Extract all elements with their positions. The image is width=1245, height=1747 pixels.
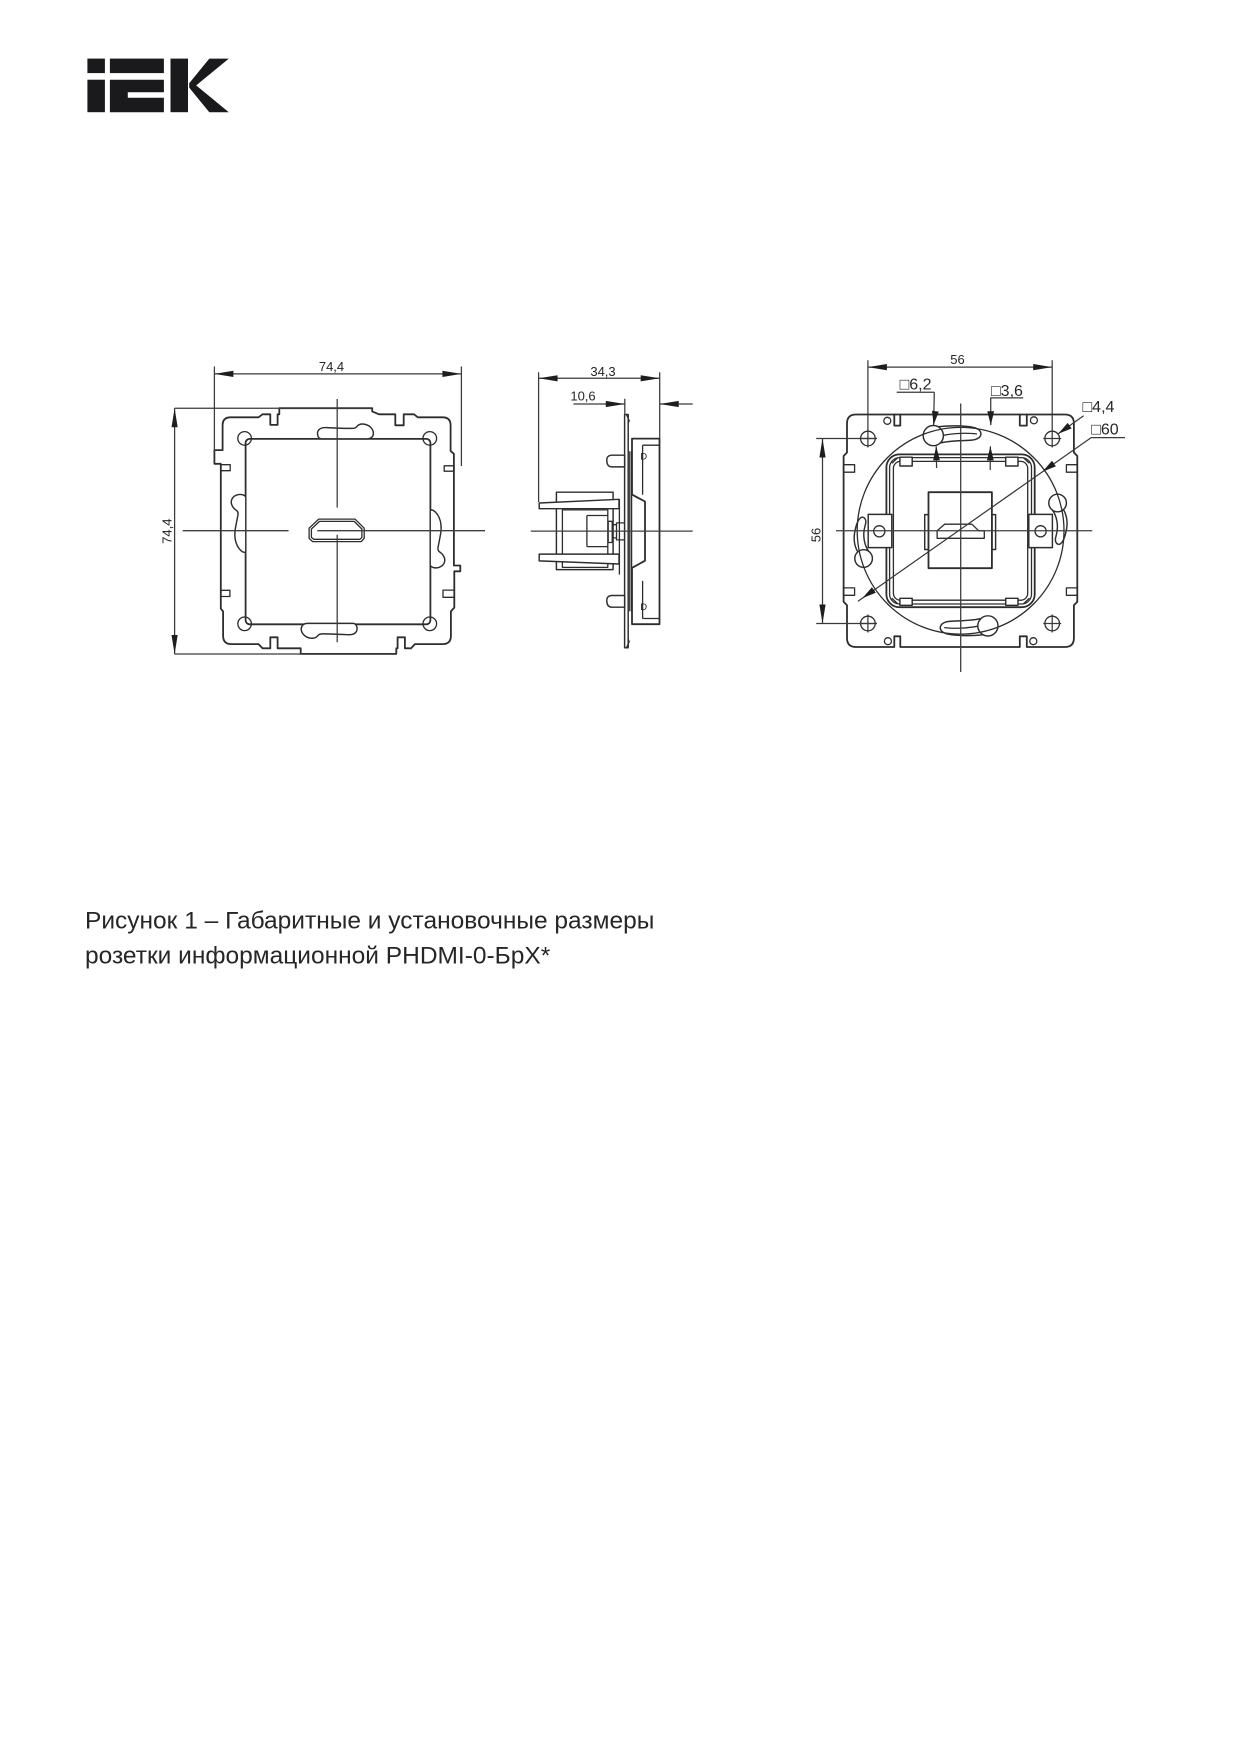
svg-text:D: D xyxy=(640,602,647,613)
svg-text:10,6: 10,6 xyxy=(570,389,595,404)
svg-text:□6,2: □6,2 xyxy=(900,377,932,394)
svg-text:56: 56 xyxy=(950,352,964,367)
svg-text:розетки информационной PHDMI-0: розетки информационной PHDMI-0-БрХ* xyxy=(85,942,551,969)
svg-text:Рисунок 1 – Габаритные и устан: Рисунок 1 – Габаритные и установочные ра… xyxy=(85,908,654,935)
svg-text:34,3: 34,3 xyxy=(590,364,615,379)
svg-text:56: 56 xyxy=(809,528,824,542)
svg-text:74,4: 74,4 xyxy=(160,519,175,544)
svg-text:□4,4: □4,4 xyxy=(1083,399,1115,416)
svg-text:D: D xyxy=(640,451,647,462)
svg-text:□60: □60 xyxy=(1091,421,1119,438)
svg-text:74,4: 74,4 xyxy=(319,359,344,374)
